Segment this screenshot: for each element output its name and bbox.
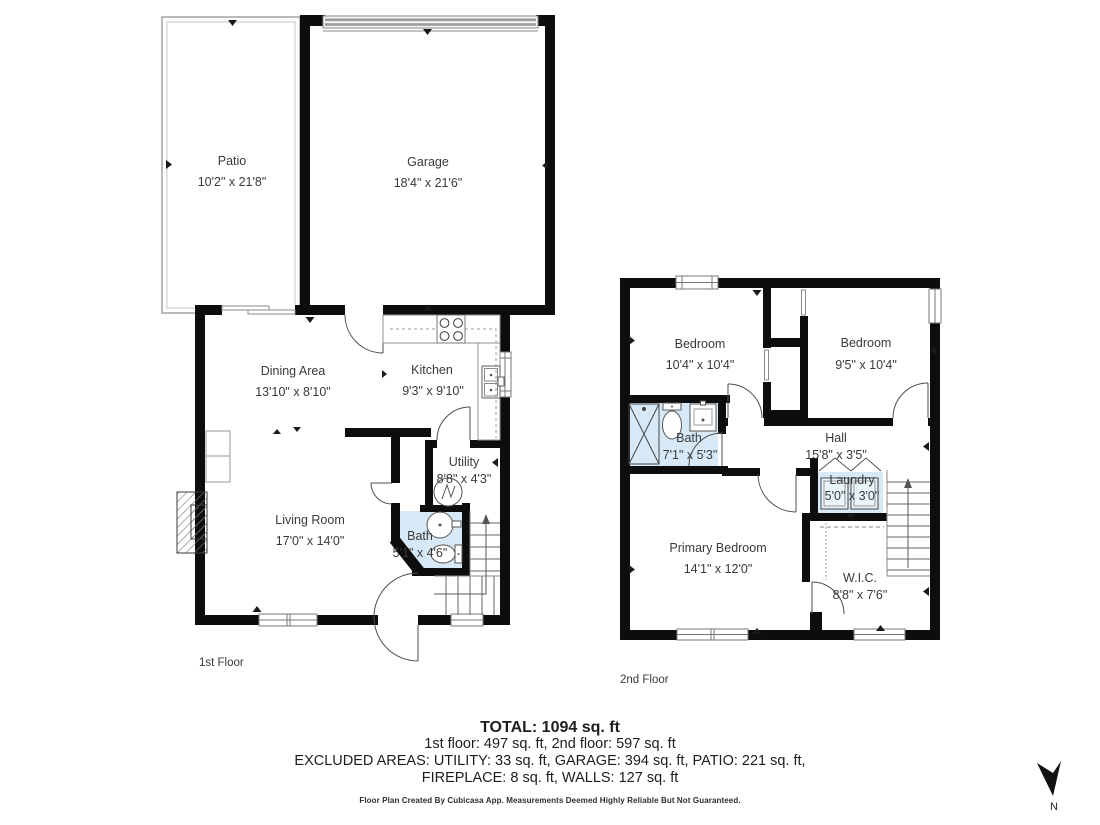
first-floor-fixtures — [166, 20, 548, 615]
stove-icon — [437, 315, 465, 343]
room-name-laundry: Laundry — [829, 473, 875, 487]
first-floor-plan — [162, 15, 555, 661]
room-name-primary: Primary Bedroom — [669, 541, 766, 555]
summary-fireplace-walls: FIREPLACE: 8 sq. ft, WALLS: 127 sq. ft — [0, 770, 1100, 787]
summary-excluded-areas: EXCLUDED AREAS: UTILITY: 33 sq. ft, GARA… — [0, 753, 1100, 770]
room-name-wic: W.I.C. — [843, 571, 877, 585]
floor-labels: 1st Floor 2nd Floor — [199, 657, 669, 686]
summary-floors: 1st floor: 497 sq. ft, 2nd floor: 597 sq… — [0, 736, 1100, 753]
room-name-bedroom1: Bedroom — [675, 337, 726, 351]
first-floor-walls — [195, 15, 555, 625]
room-dims-bedroom2: 9'5" x 10'4" — [835, 358, 897, 372]
room-dims-primary: 14'1" x 12'0" — [684, 562, 753, 576]
room-dims-dining: 13'10" x 8'10" — [255, 385, 331, 399]
room-name-bath1: Bath — [407, 529, 433, 543]
summary-block: TOTAL: 1094 sq. ft 1st floor: 497 sq. ft… — [0, 719, 1100, 805]
room-dims-patio: 10'2" x 21'8" — [198, 175, 267, 189]
room-dims-living: 17'0" x 14'0" — [276, 534, 345, 548]
floor-plan-page: Patio 10'2" x 21'8" Garage 18'4" x 21'6"… — [0, 0, 1100, 825]
floor-plan-canvas: Patio 10'2" x 21'8" Garage 18'4" x 21'6"… — [0, 0, 1100, 825]
room-name-hall: Hall — [825, 431, 847, 445]
room-name-garage: Garage — [407, 155, 449, 169]
floor-label-2nd: 2nd Floor — [620, 674, 669, 686]
room-name-patio: Patio — [218, 154, 247, 168]
bath2-sink-icon — [690, 401, 716, 431]
fireplace-icon — [177, 492, 207, 553]
staircase-2f — [887, 470, 930, 576]
room-dims-bedroom1: 10'4" x 10'4" — [666, 358, 735, 372]
room-name-bath2: Bath — [676, 431, 702, 445]
floor-label-1st: 1st Floor — [199, 657, 244, 669]
room-dims-utility: 8'8" x 4'3" — [437, 472, 492, 486]
room-name-bedroom2: Bedroom — [841, 336, 892, 350]
room-dims-hall: 15'8" x 3'5" — [805, 448, 867, 462]
room-dims-kitchen: 9'3" x 9'10" — [402, 384, 464, 398]
disclaimer-text: Floor Plan Created By Cubicasa App. Meas… — [0, 796, 1100, 805]
summary-total: TOTAL: 1094 sq. ft — [0, 719, 1100, 736]
garage-door — [323, 16, 538, 31]
builtin-shelves — [206, 431, 230, 482]
room-dims-bath2: 7'1" x 5'3" — [663, 448, 718, 462]
room-name-utility: Utility — [449, 455, 480, 469]
room-name-kitchen: Kitchen — [411, 363, 453, 377]
room-name-dining: Dining Area — [261, 364, 326, 378]
room-dims-laundry: 5'0" x 3'0" — [825, 489, 880, 503]
room-name-living: Living Room — [275, 513, 344, 527]
room-dims-bath1: 5'1" x 4'6" — [393, 546, 448, 560]
room-dims-wic: 8'8" x 7'6" — [833, 588, 888, 602]
room-dims-garage: 18'4" x 21'6" — [394, 176, 463, 190]
